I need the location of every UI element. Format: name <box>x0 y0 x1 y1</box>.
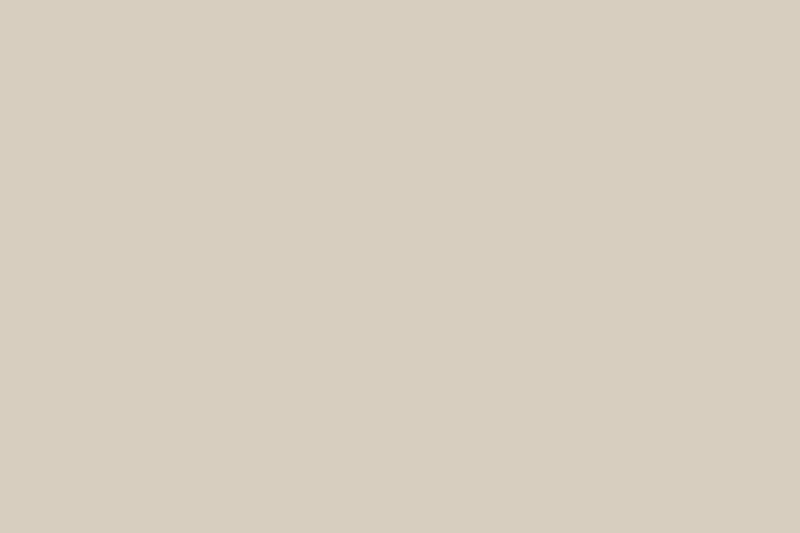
photo-architectural-model <box>0 0 800 533</box>
beige-wall-strip <box>0 0 800 533</box>
